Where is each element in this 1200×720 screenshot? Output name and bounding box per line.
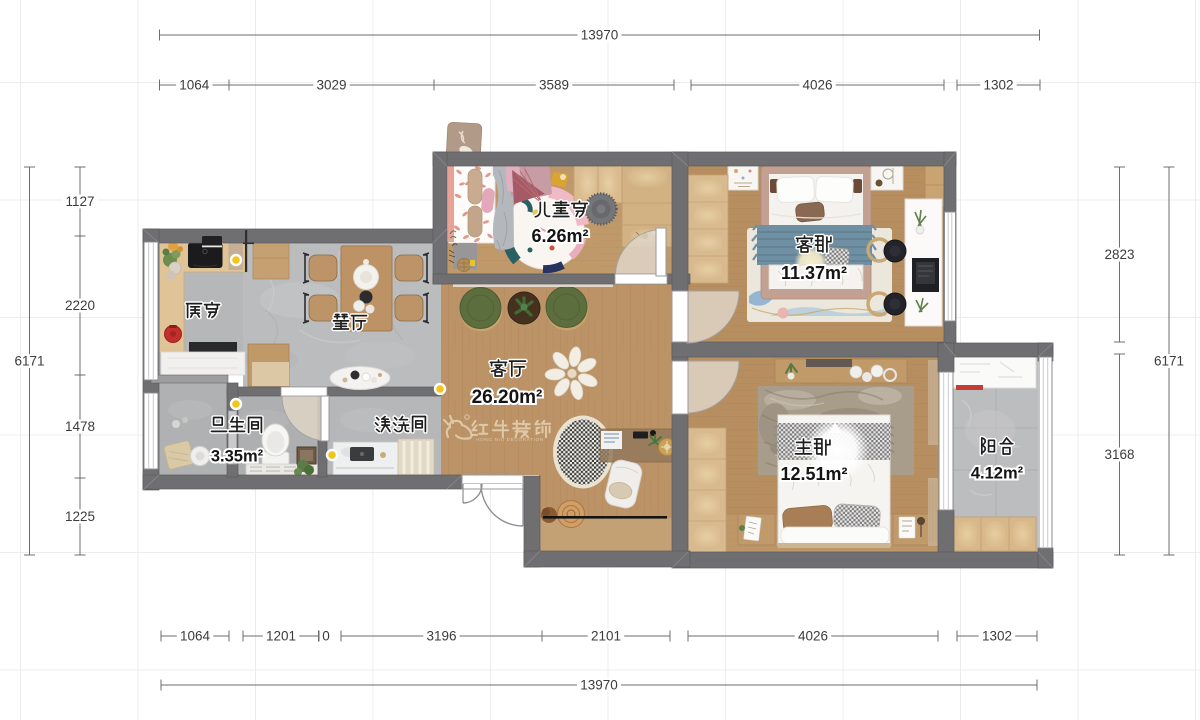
svg-text:1064: 1064 [179,78,210,93]
svg-text:6171: 6171 [1154,354,1184,369]
svg-text:2220: 2220 [65,298,95,313]
svg-text:1064: 1064 [180,629,211,644]
svg-text:13970: 13970 [581,28,619,43]
svg-text:2101: 2101 [591,629,621,644]
svg-text:12.51m²: 12.51m² [780,464,847,484]
svg-text:3029: 3029 [316,78,346,93]
svg-text:3.35m²: 3.35m² [211,447,264,465]
svg-text:4026: 4026 [802,78,832,93]
svg-text:1201: 1201 [266,629,296,644]
svg-text:4.12m²: 4.12m² [971,464,1024,482]
svg-text:6171: 6171 [14,354,44,369]
svg-text:4026: 4026 [798,629,828,644]
svg-text:3196: 3196 [426,629,456,644]
svg-text:13970: 13970 [580,678,618,693]
svg-text:HONG NIU DECORATION: HONG NIU DECORATION [476,437,544,442]
svg-text:11.37m²: 11.37m² [781,263,847,283]
svg-text:6.26m²: 6.26m² [531,226,588,246]
svg-text:0: 0 [322,629,330,644]
svg-text:1127: 1127 [65,194,94,209]
svg-text:1225: 1225 [65,509,95,524]
svg-text:3589: 3589 [539,78,569,93]
svg-text:1302: 1302 [982,629,1012,644]
svg-text:26.20m²: 26.20m² [472,387,543,408]
svg-text:2823: 2823 [1104,247,1134,262]
svg-text:1478: 1478 [65,419,95,434]
svg-text:1302: 1302 [983,78,1013,93]
svg-text:3168: 3168 [1104,447,1134,462]
